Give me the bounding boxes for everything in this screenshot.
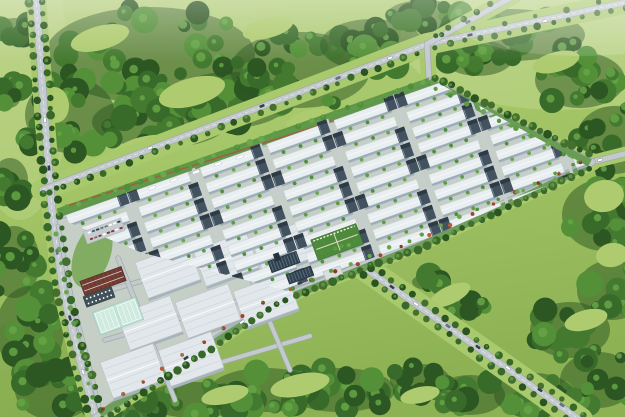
industrial-park-aerial-rendering (0, 0, 625, 417)
aerial-rendering-stage (0, 0, 625, 417)
atmospheric-haze-overlay (0, 0, 625, 62)
